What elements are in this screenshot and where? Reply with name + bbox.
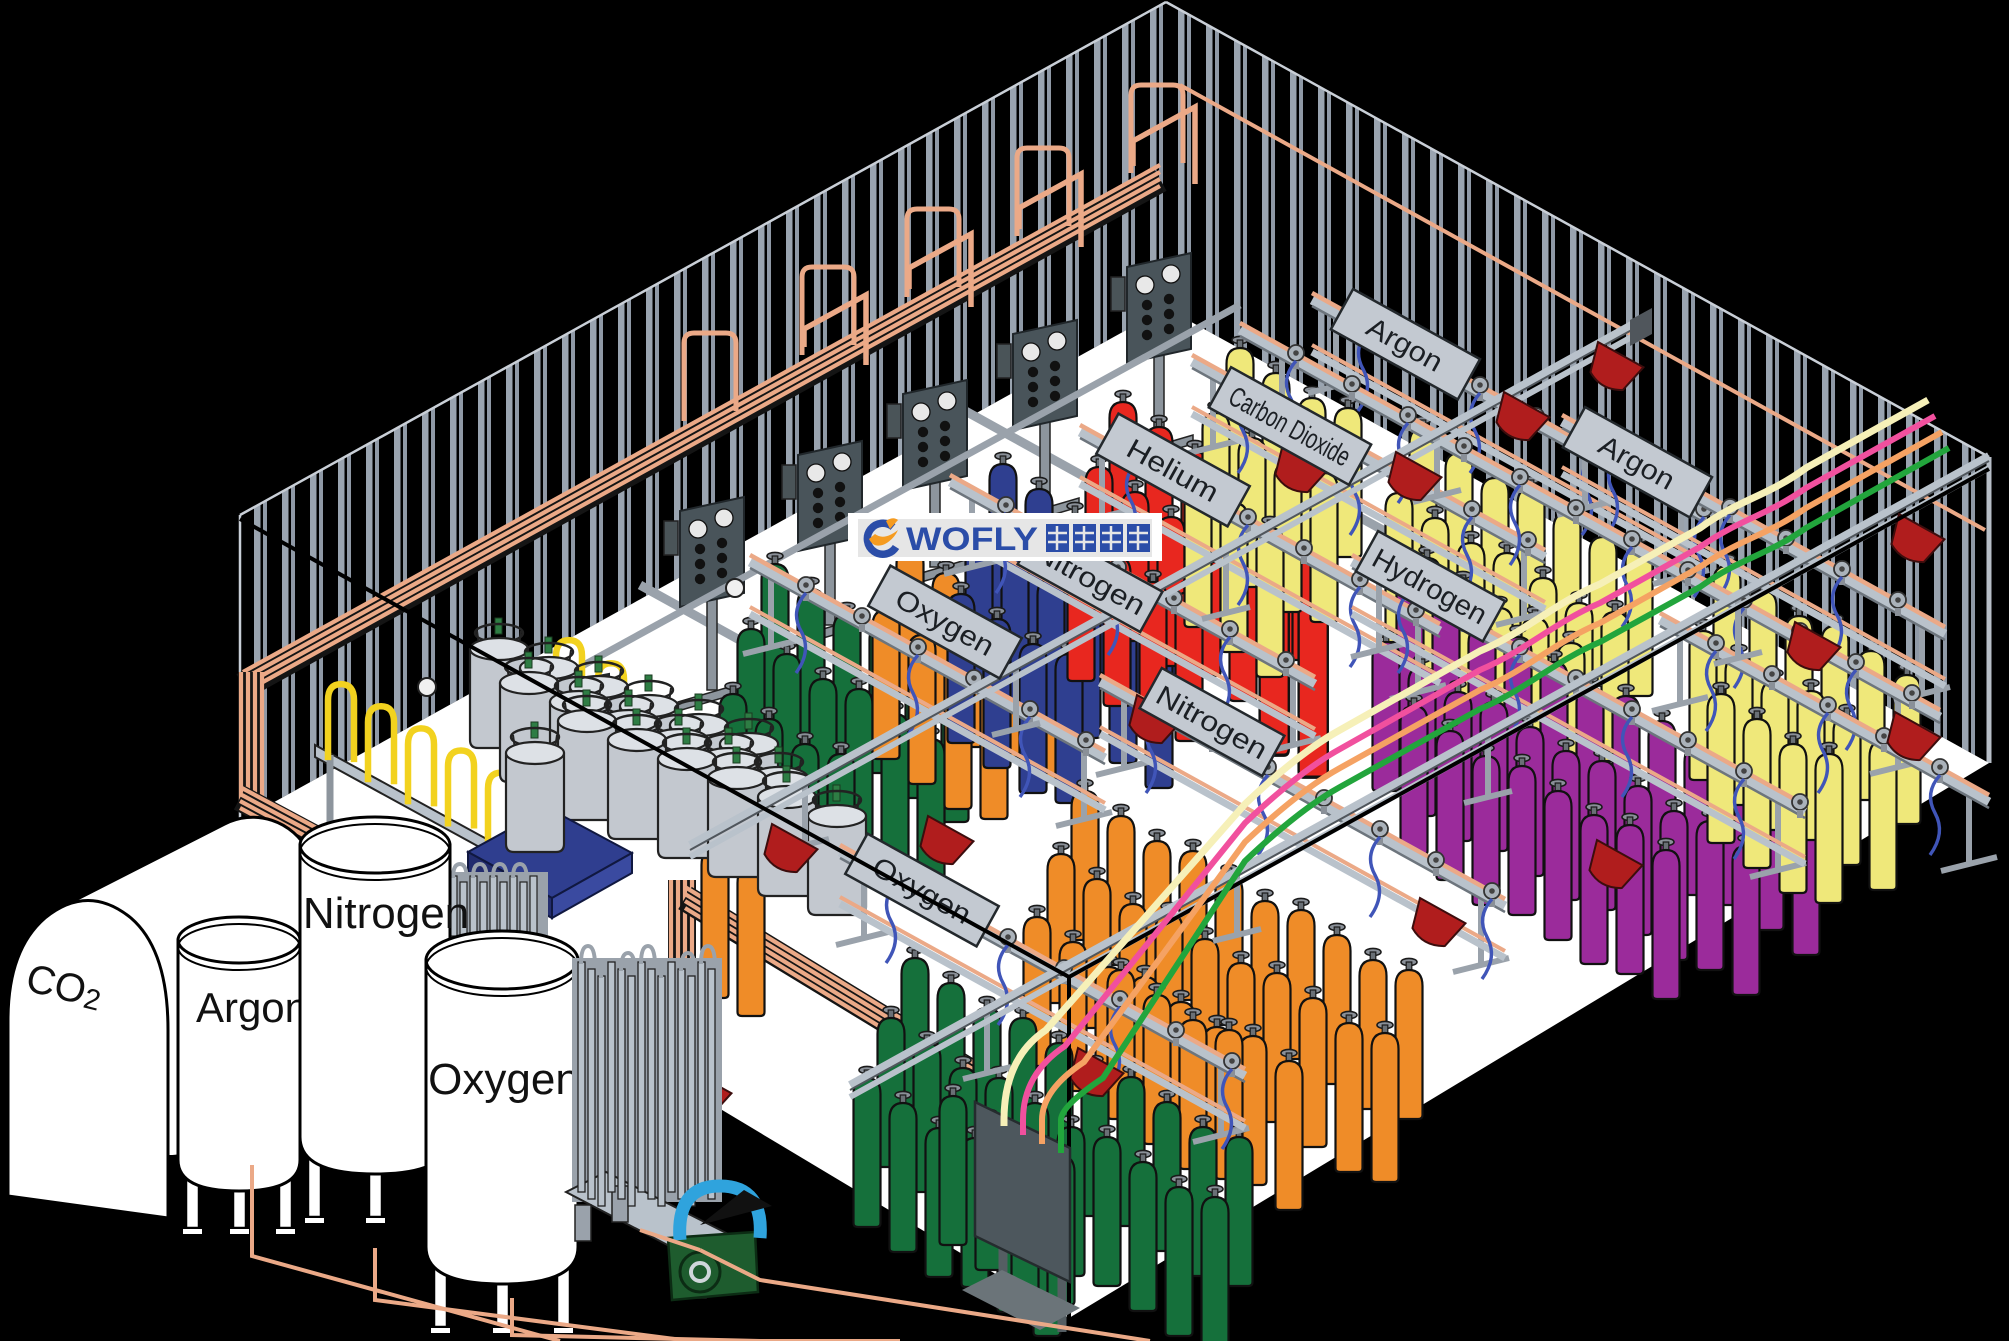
- svg-text:WOFLY: WOFLY: [906, 521, 1038, 557]
- svg-text:Argon: Argon: [196, 984, 308, 1031]
- svg-text:Nitrogen: Nitrogen: [303, 889, 469, 938]
- svg-text:Oxygen: Oxygen: [428, 1055, 580, 1104]
